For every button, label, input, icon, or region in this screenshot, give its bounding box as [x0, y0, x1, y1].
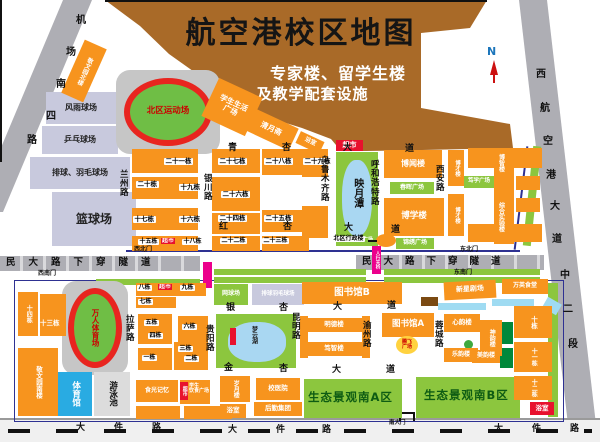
road-qingxing-char-4: 道 [405, 145, 414, 155]
bldg-bocai-south: 博才楼 [448, 194, 464, 236]
road-dajian-centerline [8, 429, 592, 433]
bldg-jingwenyuan-south: 敬文园南楼 [18, 348, 58, 416]
dorm-13-label: 十三栋 [40, 320, 60, 327]
road-avenue-char-7: 中 [560, 271, 570, 282]
bldg-wanying-canteen: 万英食堂 [502, 279, 548, 294]
dorm-13-building [40, 294, 66, 336]
road-dajian-m2: 件 [276, 426, 285, 436]
admin-callout-line [368, 240, 377, 242]
road-avenue-char-4: 港 [546, 171, 556, 182]
court-basketball: 篮球场 [52, 192, 136, 246]
bldg-east-complex-stub2 [516, 198, 540, 212]
dorm-19-label: 十九栋 [179, 184, 202, 191]
dorm-4-label: 四栋 [148, 333, 163, 339]
road-guiyang: 贵 阳 路 [206, 326, 215, 354]
mengyun-lake-label: 梦云湖 [250, 326, 256, 344]
gate-southwest-label: 西南门 [38, 271, 56, 277]
eco-south-b-label: 生态景观南B区 [424, 389, 516, 401]
court-tennis: 网球场 [214, 284, 248, 305]
frame-top-line [105, 0, 487, 2]
dorm-27-label: 二十七栋 [218, 158, 247, 165]
road-dajian-m3: 路 [322, 426, 331, 436]
dorm-2-label: 二栋 [184, 356, 199, 362]
dorm-6-label: 六栋 [182, 324, 197, 330]
road-yinxing-char-4: 道 [387, 302, 396, 312]
compass-needle-icon [490, 60, 498, 75]
north-stadium-track: 北区运动场 [124, 78, 212, 146]
bldg-mingde-wing-west [300, 316, 308, 358]
gate-south-main-label: 南大门 [389, 421, 406, 427]
bldg-xinxing-theater: 新星剧场 [444, 280, 497, 301]
bldg-mingde: 明德楼 [306, 318, 362, 332]
admin-building-label: 北区行政楼 [332, 236, 365, 242]
road-yinchuan: 银 川 路 [204, 175, 213, 203]
road-avenue-char-8: 二 [563, 305, 573, 316]
dorm-24-label: 二十四栋 [218, 215, 247, 222]
bldg-xinyun: 心韵楼 [444, 314, 480, 332]
dorm-11-building: 十一栋 [514, 342, 552, 372]
dorm-17-label: 十七栋 [133, 216, 156, 223]
dorm-12-building: 十二栋 [514, 376, 552, 400]
road-hongxing-char-3: 大 [344, 224, 353, 234]
dorm-10-building: 十栋 [514, 306, 552, 338]
road-qingxing-char-2: 杏 [282, 144, 291, 154]
dorm-8-label: 八栋 [137, 285, 152, 291]
road-jichang-char-1: 机 [76, 16, 86, 27]
road-dajian-w3: 路 [152, 424, 161, 434]
road-avenue-char-5: 大 [550, 202, 560, 213]
jinxiu-square: 锦绣广场 [396, 238, 434, 249]
bldg-south-block-a [136, 406, 180, 419]
tunnel-east-label: 民大路下穿隧道 [362, 257, 513, 267]
dorm-16-label: 十六栋 [179, 216, 202, 223]
dorm-21-label: 二十一栋 [164, 158, 193, 165]
road-lanzhou: 兰 州 路 [120, 171, 129, 199]
court-volleyball-badminton-south: 排球羽毛球场 [252, 284, 304, 305]
dorm-9-label: 九栋 [180, 285, 195, 291]
map-subtitle-line1: 专家楼、留学生楼 [243, 60, 433, 84]
tengfei-square: 腾飞 广场 [396, 336, 418, 354]
road-yinxing-char-1: 银 [226, 304, 235, 314]
road-qingxing-char-3: 大 [343, 144, 352, 154]
dorm-23-label: 二十三栋 [262, 238, 289, 244]
frame-left-line [0, 0, 2, 162]
road-jichang-char-2: 场 [66, 48, 76, 59]
road-jichang-char-5: 路 [27, 136, 37, 147]
road-qingxing-char-1: 青 [228, 144, 237, 154]
chunhui-square: 春晖广场 [390, 182, 434, 194]
bldg-east-complex-bottom [468, 224, 542, 242]
road-avenue-char-9: 段 [568, 340, 578, 351]
road-yuzhou: 渝 州 路 [363, 322, 372, 350]
bldg-dark-annex [421, 297, 438, 306]
median-green-2 [214, 269, 366, 275]
dorm-18-label: 十八栋 [182, 239, 203, 245]
dorm-22-label: 二十二栋 [220, 238, 247, 244]
road-dajian-w2: 件 [114, 424, 123, 434]
map-title: 航空港校区地图 [173, 8, 429, 52]
road-hongxing-char-4: 道 [391, 226, 400, 236]
road-lasa: 拉 萨 路 [126, 316, 135, 344]
bldg-suiyue: 岁月楼 [220, 376, 250, 402]
bldg-swimming-pool: 游泳池 [94, 372, 130, 416]
bldg-bocai-north: 博才楼 [448, 150, 464, 186]
road-dajian-e3: 路 [570, 425, 579, 435]
bldg-bathhouse-south: 浴室 [220, 404, 246, 418]
road-dajian-e1: 大 [494, 425, 503, 435]
admin-building-oval [376, 234, 396, 247]
supermarket-food-plaza: 超市 [180, 382, 188, 400]
duxue-square: 笃学广场 [464, 176, 494, 188]
student-food-plaza-label: 学生 饮食广场 [189, 384, 211, 395]
bldg-logistics: 后勤集团 [254, 402, 302, 416]
road-dajian-m1: 大 [228, 426, 237, 436]
court-volleyball-badminton: 排球、羽毛球场 [30, 157, 130, 189]
dorm-14-building: 十四栋 [18, 292, 38, 336]
gate-northwest-label: 西北门 [134, 247, 152, 253]
bldg-complab-label: 综合实验楼 [497, 202, 503, 232]
south-stadium-track: 万人体育场 [68, 288, 122, 368]
gate-northeast-label: 东北门 [460, 247, 478, 253]
dorm-28-label: 二十八栋 [264, 158, 293, 165]
road-avenue-char-3: 空 [543, 137, 553, 148]
road-wulumuqi: 乌 鲁 木 齐 路 [321, 157, 330, 203]
bathhouse-southeast: 浴室 [530, 402, 554, 415]
bldg-bozhi-label: 博智楼 [497, 154, 503, 172]
road-hongxing-char-1: 红 [219, 223, 228, 233]
dorm-15-label: 十五栋 [138, 239, 159, 245]
walkway-cyan-2 [492, 299, 534, 306]
road-dajian-w1: 大 [76, 424, 85, 434]
road-yinxing-char-2: 杏 [279, 304, 288, 314]
bldg-meiyun: 美韵楼 [472, 350, 500, 363]
road-jinxing-char-4: 道 [386, 366, 395, 376]
road-avenue-char-6: 道 [552, 235, 562, 246]
bldg-gymnasium: 体育馆 [58, 372, 92, 416]
dorm-5-label: 五栋 [144, 320, 159, 326]
road-jinxing-char-3: 大 [332, 366, 341, 376]
bldg-library-a: 图书馆A [382, 313, 434, 337]
compass-needle-tail [493, 74, 495, 83]
road-kunming: 昆 明 路 [292, 314, 301, 342]
road-jichang-char-3: 南 [56, 80, 66, 91]
tunnel-west-label: 民大路下穿隧道 [6, 258, 164, 268]
road-jichang-char-4: 四 [46, 112, 56, 123]
gate-southeast-label: 东南门 [454, 270, 472, 276]
bldg-east-complex-stub1 [516, 176, 540, 190]
dorm-26-label: 二十六栋 [221, 191, 250, 198]
road-huhehaote: 呼 和 浩 特 路 [371, 161, 380, 207]
road-avenue-char-2: 航 [540, 104, 550, 115]
bldg-canteen-shiguangjiyi: 食光记忆 [136, 380, 178, 402]
mengyun-lake-pond [228, 322, 286, 362]
road-jinxing-char-2: 杏 [279, 365, 288, 375]
walkway-cyan-1 [438, 303, 486, 310]
supermarket-dorm-south: 超市 [158, 284, 172, 290]
dorm-1-label: 一栋 [142, 355, 157, 361]
compass-n-label: N [487, 46, 496, 58]
dorm-25-label: 二十五栋 [264, 215, 293, 222]
supermarket-dorm-north: 超市 [161, 238, 175, 244]
road-avenue-char-1: 西 [536, 70, 546, 81]
road-xian: 西 安 路 [436, 166, 445, 194]
dorm-7-label: 七栋 [138, 299, 153, 305]
dorm-3-label: 三栋 [178, 346, 193, 352]
road-jinxing-char-1: 金 [224, 364, 233, 374]
campus-map: 航空港校区地图 专家楼、留学生楼 及教学配套设施 人行天桥风雨球场乒乓球场排球、… [0, 0, 600, 442]
road-hongxing-char-2: 杏 [283, 223, 292, 233]
yingyue-lake-label: 映月潭 [351, 178, 362, 208]
road-rongcheng: 蓉 城 路 [435, 322, 444, 350]
eco-south-a-label: 生态景观南A区 [308, 391, 400, 403]
dorm-20-label: 二十栋 [136, 181, 159, 188]
dorm-n-row3-col4 [302, 206, 328, 238]
road-dajian-e2: 件 [532, 425, 541, 435]
mengyun-lake-marker [230, 328, 236, 345]
bldg-clinic: 校医院 [256, 378, 300, 400]
road-yinxing-char-3: 大 [333, 303, 342, 313]
court-pingpong: 乒乓球场 [42, 126, 118, 154]
bldg-duzhi: 笃智楼 [306, 342, 362, 356]
